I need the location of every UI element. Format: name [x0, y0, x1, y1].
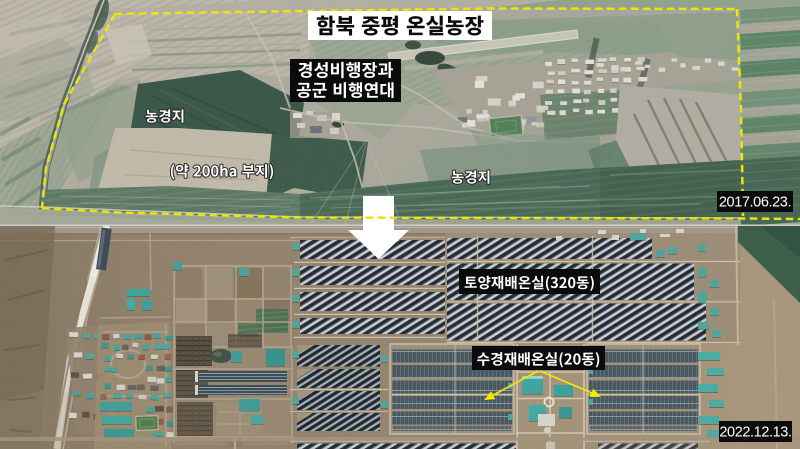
svg-text:2022.12.13.: 2022.12.13. [719, 425, 791, 441]
svg-text:2017.06.23.: 2017.06.23. [719, 195, 791, 211]
